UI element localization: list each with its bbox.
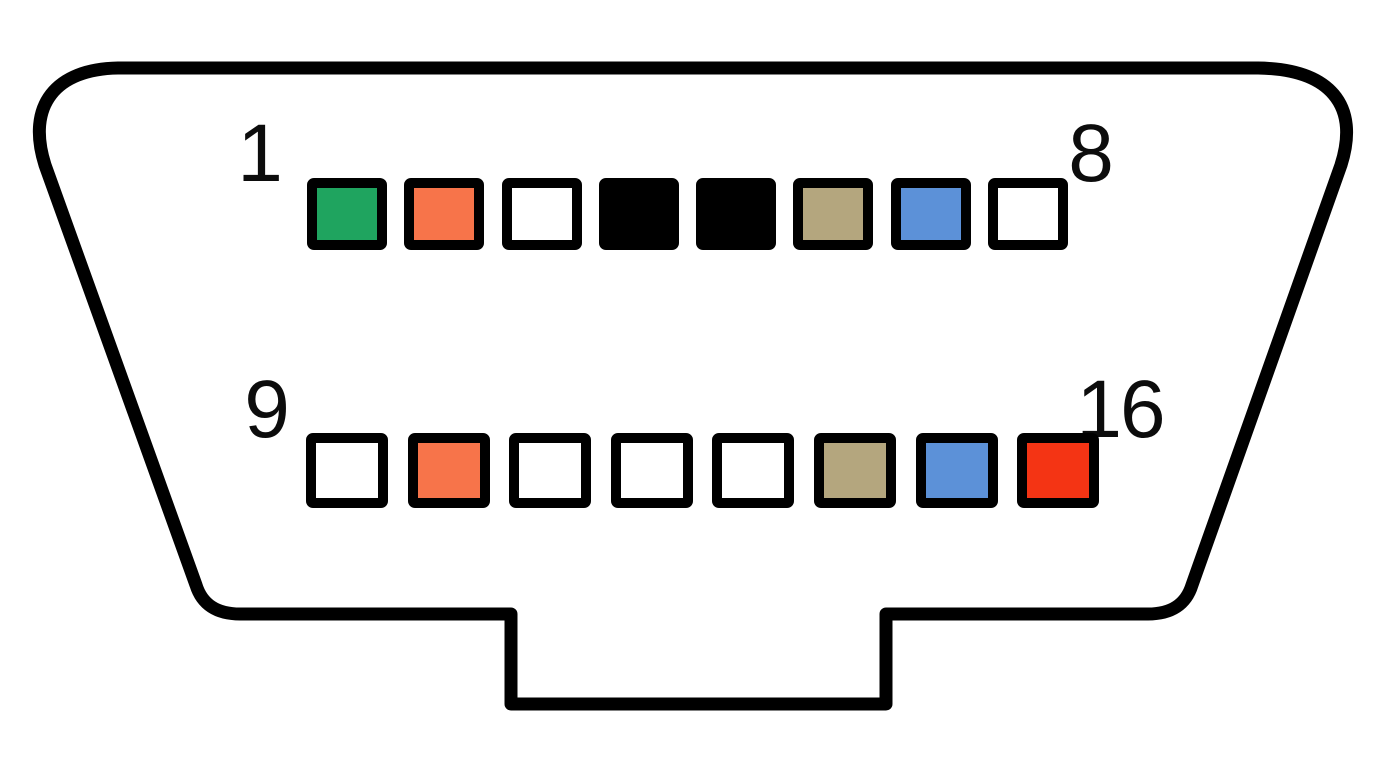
pin-1-square — [307, 178, 387, 250]
pin-1-label: 1 — [224, 113, 294, 195]
pin-12-square — [611, 433, 693, 508]
pin-row-bottom — [306, 433, 1099, 508]
pin-9-square — [306, 433, 388, 508]
pin-15-square — [916, 433, 998, 508]
pin-2-square — [404, 178, 484, 250]
pin-16-square — [1017, 433, 1099, 508]
pin-13-square — [712, 433, 794, 508]
pin-8-square — [988, 178, 1068, 250]
connector-diagram: 1 8 9 16 — [0, 0, 1386, 763]
pin-4-square — [599, 178, 679, 250]
pin-3-square — [502, 178, 582, 250]
pin-6-square — [793, 178, 873, 250]
pin-14-square — [814, 433, 896, 508]
connector-outline-svg — [0, 0, 1386, 763]
pin-7-square — [891, 178, 971, 250]
pin-row-top — [307, 178, 1068, 250]
pin-5-square — [696, 178, 776, 250]
pin-9-label: 9 — [231, 369, 301, 451]
pin-10-square — [408, 433, 490, 508]
pin-11-square — [509, 433, 591, 508]
